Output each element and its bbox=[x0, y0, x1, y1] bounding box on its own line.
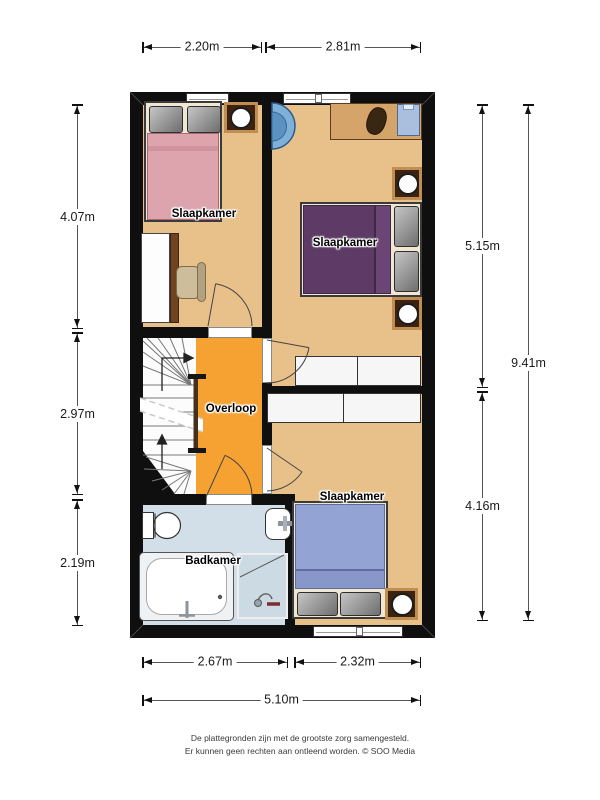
bed-blanket-fold bbox=[375, 205, 391, 294]
wall-between-top-bedrooms bbox=[262, 105, 272, 327]
window-bedroom-bottom bbox=[313, 626, 403, 637]
bed-pillow bbox=[297, 592, 338, 616]
bed-pillow bbox=[149, 106, 183, 133]
door-opening-bedroom-top-left bbox=[208, 327, 252, 338]
wall-outer-right bbox=[422, 92, 435, 638]
dimension-value: 5.10m bbox=[260, 693, 303, 707]
dimension-value: 4.16m bbox=[462, 498, 503, 514]
door-opening-bedroom-top-right bbox=[262, 338, 272, 383]
room-label-bedroom-top-left: Slaapkamer bbox=[172, 208, 237, 220]
dimension-value: 2.81m bbox=[322, 40, 365, 54]
lamp-icon bbox=[397, 303, 419, 325]
wardrobe-section bbox=[267, 393, 344, 423]
wall-bathroom-top-left bbox=[143, 494, 206, 505]
shower-tray bbox=[237, 553, 288, 619]
wardrobe-section bbox=[357, 356, 421, 386]
toilet-cistern bbox=[142, 512, 154, 539]
side-table bbox=[392, 297, 422, 330]
side-table bbox=[392, 167, 422, 200]
lamp-icon bbox=[230, 107, 252, 129]
door-opening-bathroom bbox=[206, 494, 252, 505]
side-table bbox=[224, 102, 258, 133]
wall-bedroom1-landing-left bbox=[143, 327, 208, 338]
desk bbox=[141, 233, 170, 323]
door-opening-bedroom-bottom bbox=[262, 445, 272, 494]
dimension-value: 4.07m bbox=[57, 209, 98, 225]
bed-blanket-fold bbox=[148, 146, 218, 151]
bed-pillow bbox=[340, 592, 381, 616]
room-label-bedroom-bottom: Slaapkamer bbox=[320, 491, 385, 503]
dimension-value: 2.67m bbox=[194, 655, 237, 669]
floorplan-page: Slaapkamer Slaapkamer Overloop Badkamer … bbox=[0, 0, 600, 800]
wall-bedroom1-landing-right bbox=[252, 327, 272, 338]
window-divider bbox=[356, 627, 363, 636]
dimension-value: 2.32m bbox=[336, 655, 379, 669]
desk-chair-back bbox=[197, 262, 206, 302]
window-divider bbox=[315, 94, 322, 103]
floor-stairs bbox=[143, 338, 196, 494]
wardrobe-section bbox=[343, 393, 421, 423]
dimension-value: 2.20m bbox=[181, 40, 224, 54]
bed-pillow bbox=[187, 106, 221, 133]
room-label-bathroom: Badkamer bbox=[185, 555, 241, 567]
floor-landing bbox=[196, 338, 262, 494]
disclaimer-line-1: De plattegronden zijn met de grootste zo… bbox=[0, 732, 600, 745]
wall-bathroom-top-right bbox=[252, 494, 295, 505]
room-label-landing: Overloop bbox=[206, 403, 256, 415]
bed-blanket-blue bbox=[295, 504, 385, 570]
disclaimer-footer: De plattegronden zijn met de grootste zo… bbox=[0, 732, 600, 758]
disclaimer-line-2: Er kunnen geen rechten aan ontleend word… bbox=[0, 745, 600, 758]
bed-blanket-fold bbox=[295, 570, 385, 589]
bed-blanket-purple bbox=[303, 205, 375, 294]
window-sill-line bbox=[189, 99, 226, 100]
dimension-value: 2.19m bbox=[57, 555, 98, 571]
side-table bbox=[385, 588, 418, 620]
dimension-value: 9.41m bbox=[508, 355, 549, 371]
room-label-bedroom-top-right: Slaapkamer bbox=[313, 237, 378, 249]
shirt-collar bbox=[403, 104, 414, 110]
bed-pillow bbox=[394, 206, 419, 247]
bed-pillow bbox=[394, 251, 419, 292]
wardrobe-section bbox=[295, 356, 358, 386]
dimension-value: 5.15m bbox=[462, 238, 503, 254]
washbasin-faucet-handle bbox=[283, 516, 287, 531]
lamp-icon bbox=[391, 593, 414, 616]
lamp-icon bbox=[397, 173, 419, 195]
dimension-value: 2.97m bbox=[57, 406, 98, 422]
